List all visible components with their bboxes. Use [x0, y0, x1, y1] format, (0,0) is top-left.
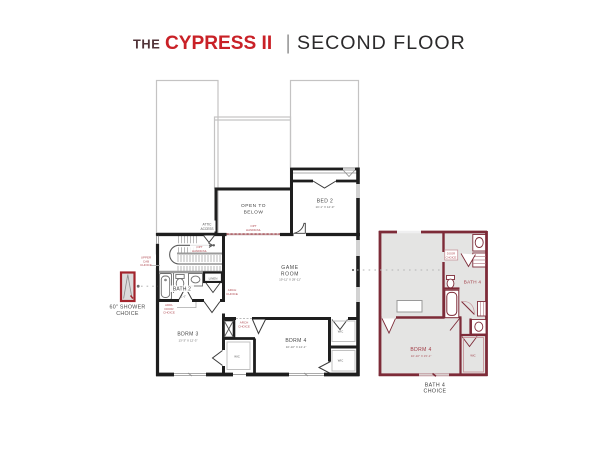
- svg-text:LINEN: LINEN: [209, 277, 218, 281]
- svg-text:BED 2: BED 2: [317, 199, 333, 205]
- svg-text:CHOICE: CHOICE: [423, 388, 446, 394]
- svg-text:CHOICE: CHOICE: [226, 292, 238, 296]
- svg-text:WIC: WIC: [338, 359, 343, 363]
- svg-text:BDRM 4: BDRM 4: [285, 338, 306, 344]
- svg-text:WIC: WIC: [338, 330, 343, 334]
- svg-text:CHOICE: CHOICE: [238, 325, 250, 329]
- svg-text:GAME: GAME: [281, 265, 299, 271]
- svg-text:CHOICE: CHOICE: [446, 255, 457, 259]
- svg-text:13'-3" X 12'-3": 13'-3" X 12'-3": [179, 339, 198, 343]
- svg-text:OPEN TO: OPEN TO: [241, 203, 266, 209]
- svg-text:60" SHOWER: 60" SHOWER: [109, 305, 145, 311]
- svg-text:HANDRAIL: HANDRAIL: [192, 249, 208, 253]
- svg-text:CHOICE: CHOICE: [163, 311, 175, 315]
- svg-text:CYPRESS II: CYPRESS II: [165, 33, 272, 54]
- svg-text:BELOW: BELOW: [244, 210, 264, 216]
- svg-text:CHOICE: CHOICE: [116, 311, 139, 317]
- svg-text:CHOICE: CHOICE: [140, 263, 152, 267]
- svg-text:11'-0": 11'-0": [180, 296, 186, 299]
- svg-text:10'-10" X 14'-1": 10'-10" X 14'-1": [286, 345, 307, 349]
- svg-text:SECOND FLOOR: SECOND FLOOR: [297, 32, 466, 54]
- svg-text:19'-11" X 29'-11": 19'-11" X 29'-11": [279, 278, 301, 282]
- svg-text:WIC: WIC: [470, 354, 475, 358]
- svg-text:10'-1" X 12'-9": 10'-1" X 12'-9": [316, 205, 335, 209]
- svg-text:10'-10" X 15'-1": 10'-10" X 15'-1": [411, 354, 432, 358]
- svg-text:ACCESS: ACCESS: [200, 227, 213, 231]
- svg-text:BDRM 3: BDRM 3: [177, 332, 198, 338]
- svg-text:HANDRAIL: HANDRAIL: [246, 228, 262, 232]
- svg-text:WIC: WIC: [234, 355, 239, 359]
- svg-text:BATH 2: BATH 2: [173, 287, 191, 293]
- svg-text:|: |: [286, 33, 291, 55]
- svg-text:THE: THE: [133, 37, 160, 52]
- svg-text:BDRM 4: BDRM 4: [410, 347, 431, 353]
- svg-text:BATH 4: BATH 4: [464, 280, 482, 285]
